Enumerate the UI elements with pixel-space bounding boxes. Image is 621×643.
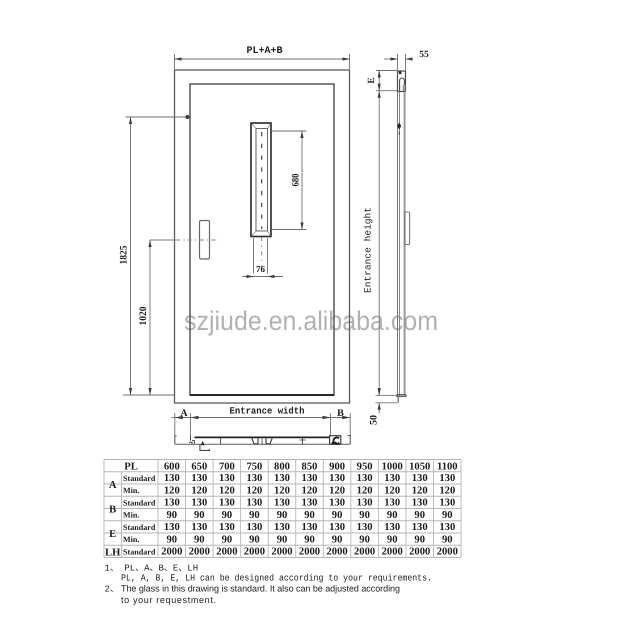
svg-text:90: 90 [387, 534, 398, 545]
svg-text:90: 90 [167, 510, 178, 521]
svg-text:130: 130 [219, 498, 235, 509]
svg-text:2000: 2000 [216, 547, 237, 558]
svg-text:90: 90 [222, 534, 233, 545]
svg-text:E: E [109, 529, 116, 540]
svg-text:90: 90 [249, 510, 260, 521]
svg-text:130: 130 [384, 473, 400, 484]
svg-text:130: 130 [329, 498, 345, 509]
svg-text:90: 90 [332, 510, 343, 521]
svg-text:90: 90 [277, 534, 288, 545]
svg-text:130: 130 [412, 522, 428, 533]
svg-text:90: 90 [222, 510, 233, 521]
svg-text:LH: LH [105, 547, 121, 558]
svg-text:90: 90 [194, 510, 205, 521]
svg-text:950: 950 [357, 461, 373, 472]
svg-text:120: 120 [274, 485, 290, 496]
svg-text:1020: 1020 [138, 307, 149, 326]
svg-text:The glass in this drawing is s: The glass in this drawing is standard. I… [121, 584, 400, 594]
svg-text:50: 50 [369, 415, 380, 425]
svg-text:650: 650 [191, 461, 207, 472]
svg-text:120: 120 [412, 485, 428, 496]
svg-text:Standard: Standard [123, 498, 156, 507]
svg-text:130: 130 [246, 522, 262, 533]
svg-text:130: 130 [357, 498, 373, 509]
svg-text:90: 90 [167, 534, 178, 545]
svg-text:130: 130 [219, 522, 235, 533]
svg-text:Entrance height: Entrance height [363, 207, 374, 293]
svg-text:2000: 2000 [189, 547, 210, 558]
svg-text:90: 90 [332, 534, 343, 545]
svg-text:Min.: Min. [123, 535, 139, 544]
svg-text:2000: 2000 [299, 547, 320, 558]
svg-text:90: 90 [304, 534, 315, 545]
svg-text:A: A [180, 408, 188, 419]
svg-text:130: 130 [164, 473, 180, 484]
svg-text:130: 130 [439, 522, 455, 533]
svg-text:76: 76 [256, 264, 266, 274]
svg-text:1050: 1050 [409, 461, 430, 472]
svg-text:130: 130 [274, 473, 290, 484]
svg-text:120: 120 [384, 485, 400, 496]
svg-text:130: 130 [191, 498, 207, 509]
svg-text:130: 130 [329, 473, 345, 484]
svg-text:130: 130 [246, 498, 262, 509]
svg-text:130: 130 [412, 498, 428, 509]
svg-text:130: 130 [329, 522, 345, 533]
svg-text:120: 120 [219, 485, 235, 496]
svg-text:90: 90 [359, 534, 370, 545]
svg-text:130: 130 [274, 522, 290, 533]
svg-text:PL: PL [124, 461, 138, 472]
svg-text:130: 130 [302, 473, 318, 484]
svg-text:130: 130 [357, 473, 373, 484]
svg-text:1000: 1000 [382, 461, 403, 472]
svg-text:130: 130 [439, 498, 455, 509]
svg-text:A: A [109, 480, 117, 491]
svg-text:800: 800 [274, 461, 290, 472]
svg-text:90: 90 [194, 534, 205, 545]
svg-text:2000: 2000 [271, 547, 292, 558]
svg-text:120: 120 [246, 485, 262, 496]
svg-text:90: 90 [304, 510, 315, 521]
svg-text:B: B [109, 504, 116, 515]
svg-text:130: 130 [191, 522, 207, 533]
svg-text:E: E [367, 77, 377, 83]
svg-text:600: 600 [164, 461, 180, 472]
svg-text:B: B [337, 408, 344, 419]
svg-text:90: 90 [387, 510, 398, 521]
svg-text:Standard: Standard [123, 547, 156, 556]
svg-text:90: 90 [414, 534, 425, 545]
svg-text:Min.: Min. [123, 486, 139, 495]
svg-text:120: 120 [439, 485, 455, 496]
svg-text:700: 700 [219, 461, 235, 472]
svg-text:2000: 2000 [382, 547, 403, 558]
svg-text:120: 120 [302, 485, 318, 496]
svg-text:130: 130 [357, 522, 373, 533]
svg-text:1825: 1825 [119, 246, 130, 265]
svg-text:90: 90 [442, 510, 453, 521]
svg-text:90: 90 [249, 534, 260, 545]
svg-text:Min.: Min. [123, 511, 139, 520]
svg-text:Standard: Standard [123, 523, 156, 532]
svg-text:900: 900 [329, 461, 345, 472]
svg-text:120: 120 [329, 485, 345, 496]
svg-text:680: 680 [291, 174, 302, 187]
svg-text:Standard: Standard [123, 474, 156, 483]
svg-text:2000: 2000 [437, 547, 458, 558]
svg-text:2000: 2000 [327, 547, 348, 558]
svg-text:2、: 2、 [105, 585, 119, 595]
svg-text:130: 130 [302, 522, 318, 533]
svg-text:90: 90 [277, 510, 288, 521]
svg-text:130: 130 [274, 498, 290, 509]
svg-text:to your requestment.: to your requestment. [121, 595, 216, 605]
svg-text:130: 130 [219, 473, 235, 484]
svg-text:PL, A, B, E, LH can be designe: PL, A, B, E, LH can be designed accordin… [121, 572, 432, 583]
svg-text:90: 90 [442, 534, 453, 545]
svg-text:PL+A+B: PL+A+B [247, 46, 283, 57]
svg-text:90: 90 [359, 510, 370, 521]
svg-text:120: 120 [357, 485, 373, 496]
svg-text:130: 130 [191, 473, 207, 484]
svg-text:130: 130 [439, 473, 455, 484]
svg-text:1100: 1100 [437, 461, 458, 472]
svg-text:2000: 2000 [161, 547, 182, 558]
svg-text:130: 130 [384, 498, 400, 509]
svg-text:90: 90 [414, 510, 425, 521]
svg-text:130: 130 [246, 473, 262, 484]
svg-text:2000: 2000 [409, 547, 430, 558]
svg-text:120: 120 [191, 485, 207, 496]
svg-text:120: 120 [164, 485, 180, 496]
svg-text:130: 130 [164, 498, 180, 509]
svg-text:130: 130 [384, 522, 400, 533]
svg-text:750: 750 [246, 461, 262, 472]
svg-text:130: 130 [412, 473, 428, 484]
svg-text:2000: 2000 [354, 547, 375, 558]
svg-text:130: 130 [164, 522, 180, 533]
svg-text:2000: 2000 [244, 547, 265, 558]
svg-text:Entrance width: Entrance width [230, 406, 305, 417]
svg-text:130: 130 [302, 498, 318, 509]
svg-text:850: 850 [302, 461, 318, 472]
svg-text:55: 55 [419, 50, 429, 60]
